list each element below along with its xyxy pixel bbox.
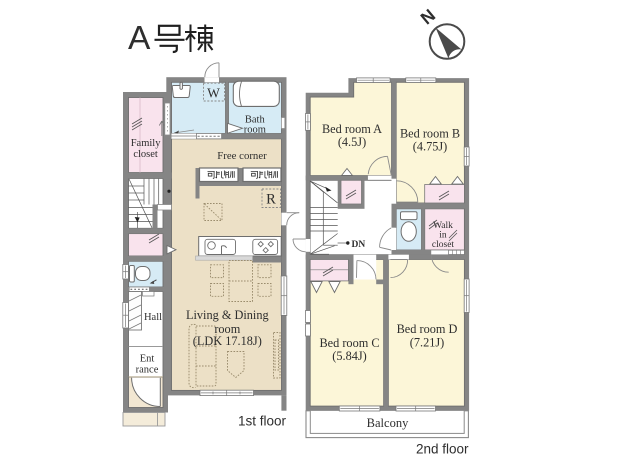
svg-text:Walk: Walk [433, 221, 453, 231]
svg-text:1st floor: 1st floor [238, 414, 287, 429]
svg-text:closet: closet [432, 240, 455, 250]
svg-text:(7.21J): (7.21J) [410, 336, 445, 350]
svg-text:closet: closet [133, 149, 158, 160]
svg-text:Free corner: Free corner [217, 150, 267, 162]
svg-text:room: room [244, 125, 266, 136]
svg-text:Bed room C: Bed room C [319, 336, 379, 350]
svg-text:2nd floor: 2nd floor [416, 442, 469, 457]
svg-text:(LDK 17.18J): (LDK 17.18J) [193, 334, 262, 348]
svg-text:rance: rance [136, 365, 159, 376]
svg-text:Bed room A: Bed room A [322, 122, 382, 136]
svg-text:A: A [128, 20, 151, 57]
svg-text:DN: DN [352, 240, 366, 250]
svg-text:Living & Dining: Living & Dining [186, 308, 269, 322]
svg-text:Bed room B: Bed room B [400, 127, 460, 141]
svg-text:R: R [266, 192, 276, 208]
svg-text:(4.75J): (4.75J) [413, 140, 448, 154]
svg-text:in: in [439, 231, 447, 241]
svg-text:(5.84J): (5.84J) [332, 349, 367, 363]
svg-text:Ent: Ent [140, 354, 155, 365]
svg-text:(4.5J): (4.5J) [338, 135, 366, 149]
svg-text:Family: Family [131, 138, 162, 149]
svg-text:Balcony: Balcony [367, 416, 409, 430]
svg-text:N: N [417, 5, 440, 28]
svg-text:Bed room D: Bed room D [397, 322, 458, 336]
svg-text:W: W [207, 86, 220, 101]
svg-text:Hall: Hall [144, 312, 162, 323]
